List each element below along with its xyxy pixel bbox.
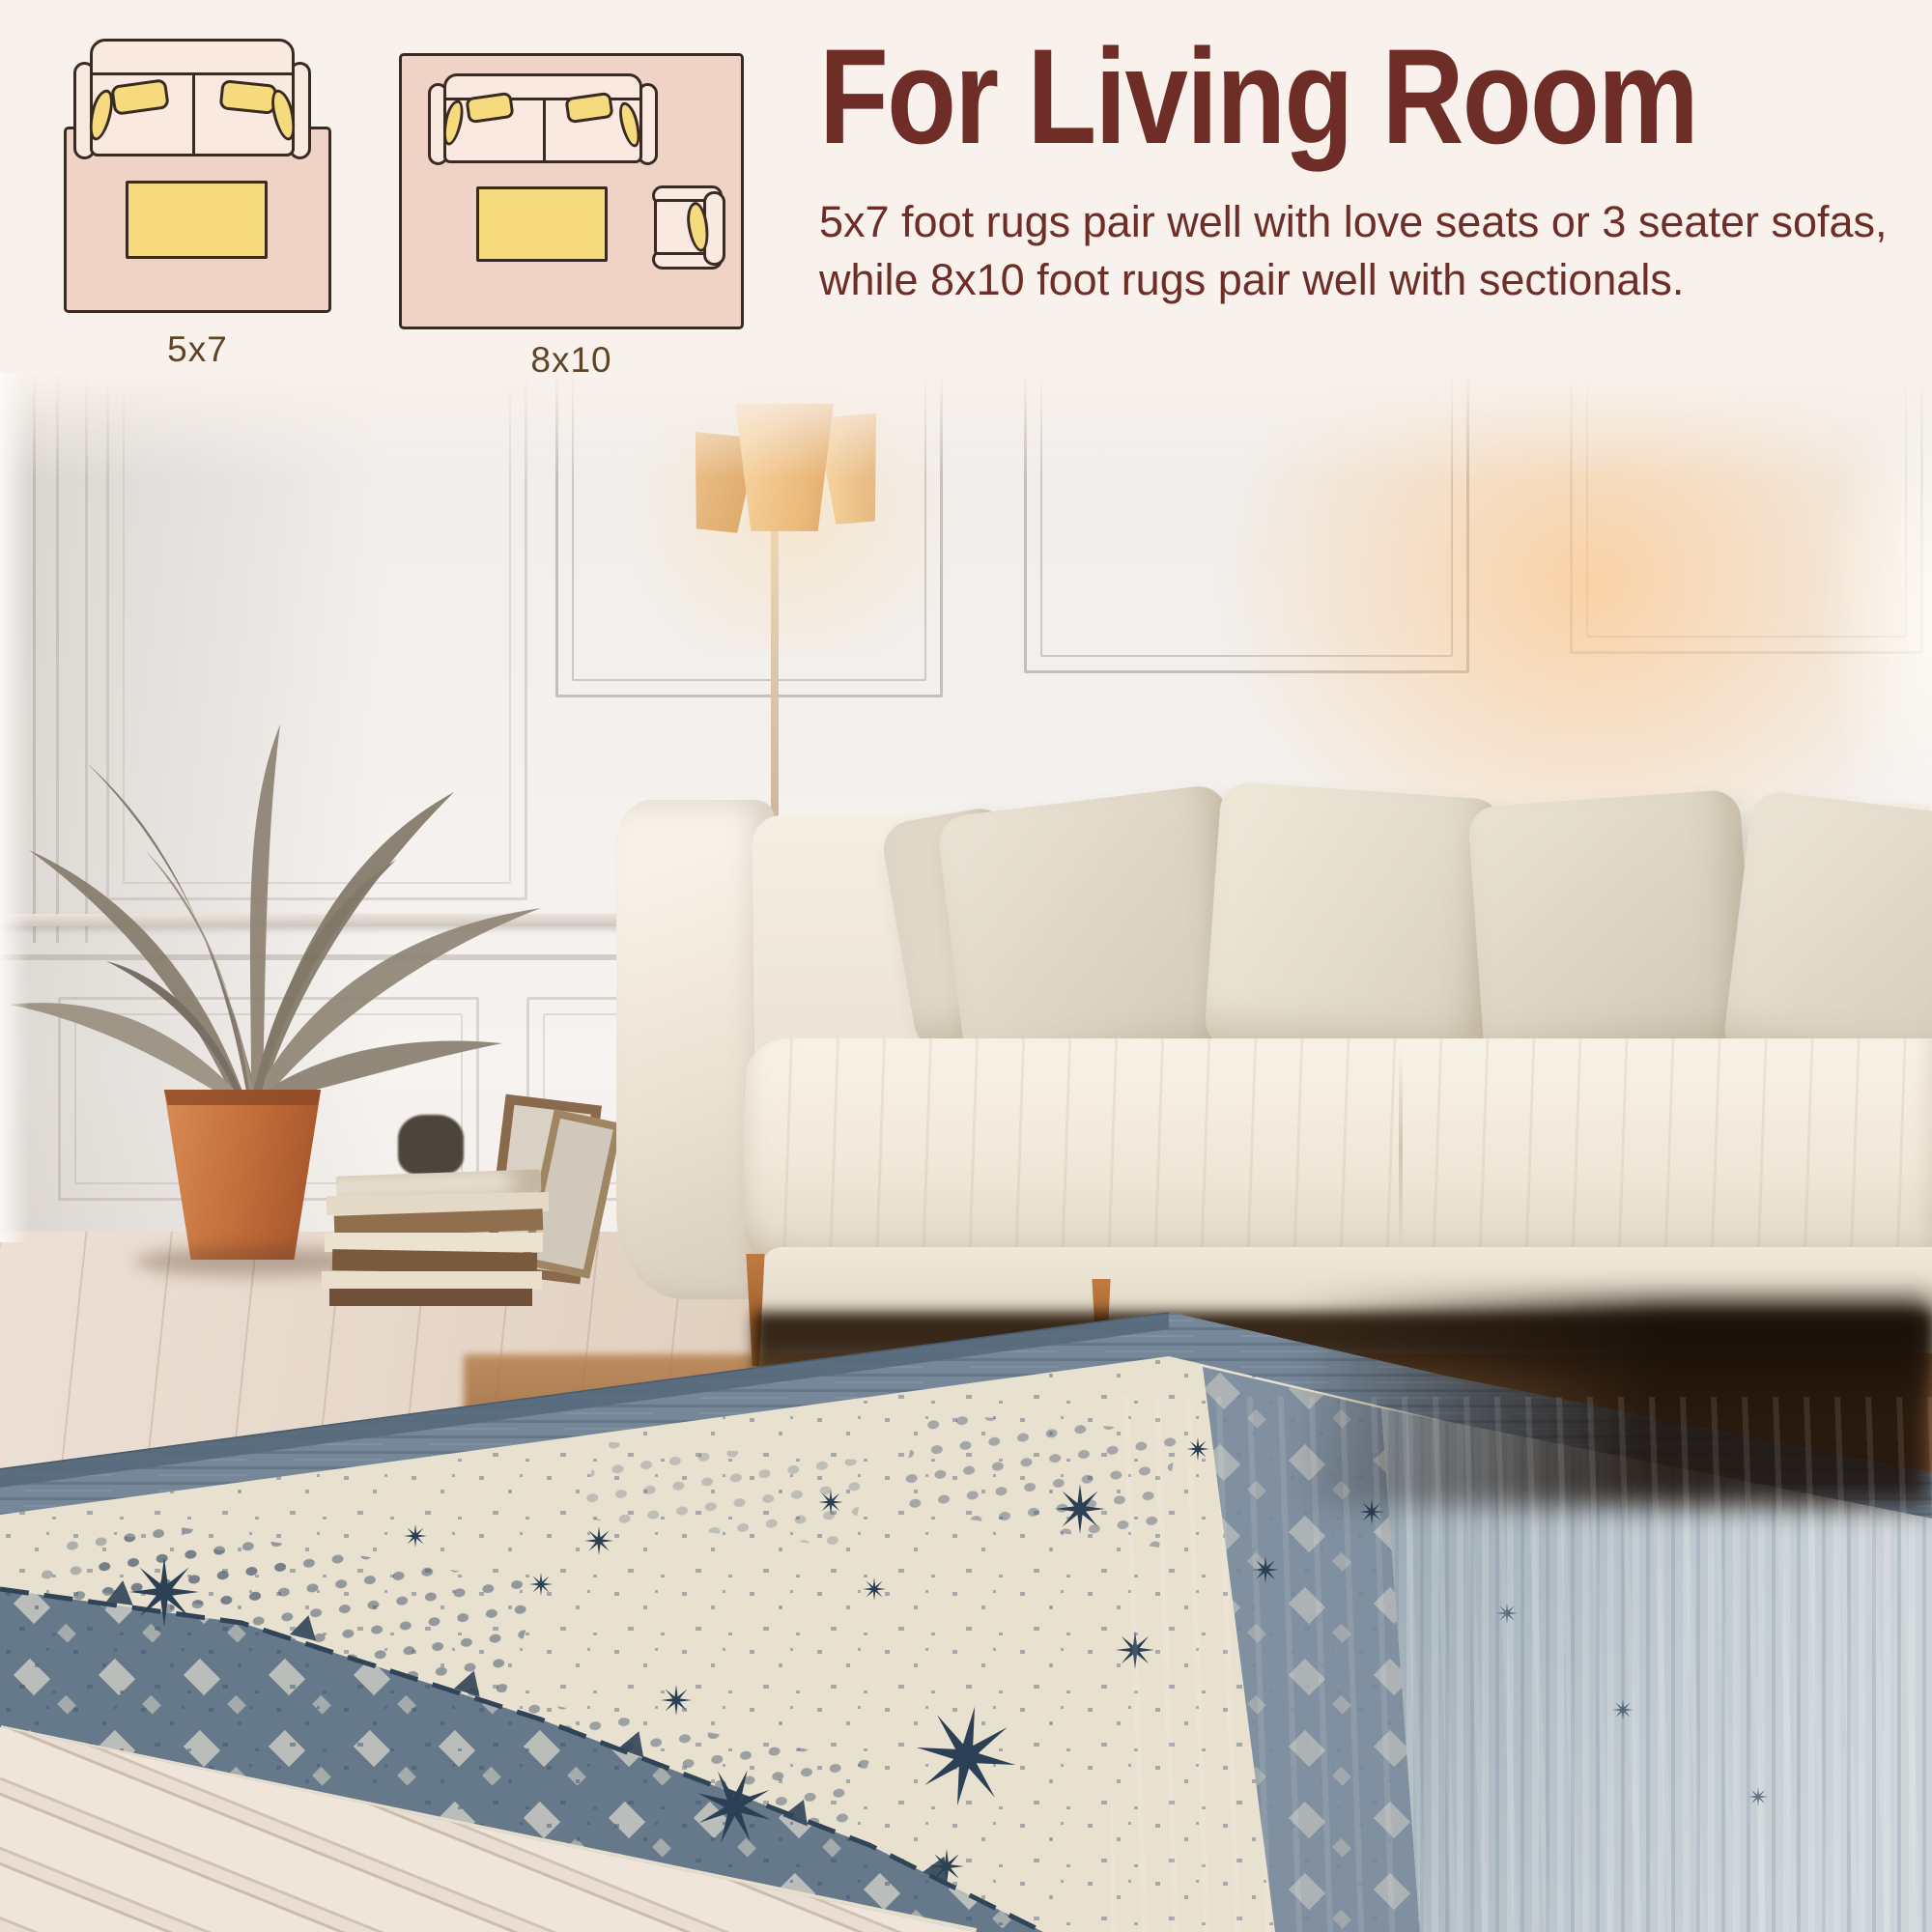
diagram-5x7: 5x7 bbox=[0, 0, 396, 377]
coffee-table bbox=[476, 186, 608, 262]
throw-pillow bbox=[1467, 788, 1757, 1069]
photo-top-fade bbox=[0, 373, 1932, 479]
pot-rim bbox=[147, 1090, 338, 1105]
sofa-seat-wrinkles bbox=[744, 1038, 1932, 1268]
page-title: For Living Room bbox=[819, 29, 1697, 164]
size-guide-band: 5x7 8x10 For Living Room 5x7 foot ru bbox=[0, 0, 1932, 377]
sofa-seat-divider bbox=[192, 75, 195, 154]
throw-pillow bbox=[1204, 781, 1504, 1066]
sofa-seat-divider bbox=[543, 100, 546, 161]
diagram-label-5x7: 5x7 bbox=[64, 329, 331, 370]
page-description: 5x7 foot rugs pair well with love seats … bbox=[819, 193, 1920, 309]
photo-left-light-edge bbox=[0, 373, 29, 1242]
book bbox=[332, 1249, 537, 1274]
rug-light-reflection bbox=[1111, 1397, 1932, 1932]
coffee-table bbox=[126, 181, 268, 259]
diagram-8x10: 8x10 bbox=[367, 0, 782, 377]
sofa-seat-seam bbox=[1399, 1049, 1403, 1247]
sofa-pillow bbox=[219, 79, 278, 115]
rug-infographic: 5x7 8x10 For Living Room 5x7 foot ru bbox=[0, 0, 1932, 1932]
book bbox=[322, 1271, 542, 1290]
living-room-photo bbox=[0, 373, 1932, 1932]
statue-figurine bbox=[398, 1115, 464, 1175]
